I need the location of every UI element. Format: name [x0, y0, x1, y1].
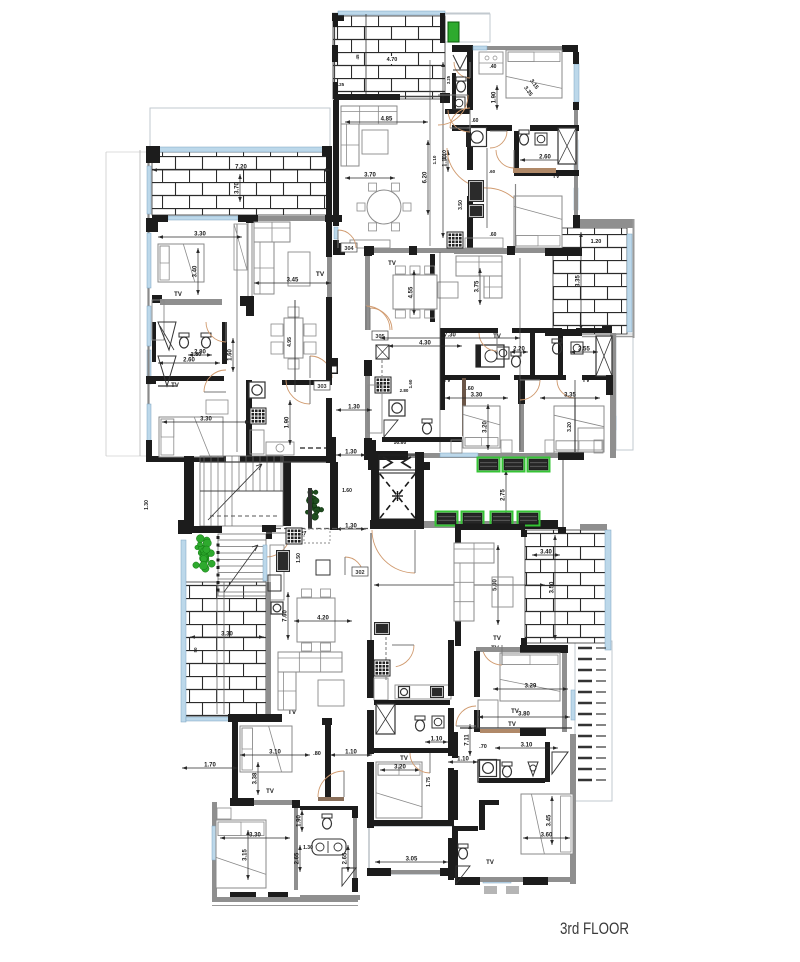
svg-text:3.60: 3.60 [541, 833, 553, 839]
svg-text:7.60: 7.60 [283, 610, 289, 622]
svg-text:1.30: 1.30 [348, 405, 360, 411]
svg-text:1.90: 1.90 [285, 416, 291, 428]
svg-text:1.60: 1.60 [342, 488, 352, 494]
svg-text:3.30: 3.30 [194, 232, 206, 238]
svg-text:.25: .25 [338, 82, 345, 87]
svg-text:3.05: 3.05 [406, 857, 418, 863]
svg-text:1.30: 1.30 [345, 450, 357, 456]
svg-text:TV: TV [316, 271, 325, 278]
svg-text:6.20: 6.20 [423, 171, 429, 183]
svg-text:3.35: 3.35 [564, 393, 576, 399]
svg-text:.60: .60 [466, 386, 474, 392]
svg-text:2.20: 2.20 [513, 347, 525, 353]
svg-text:303: 303 [317, 384, 326, 390]
svg-text:TV: TV [388, 261, 396, 267]
svg-text:3.20: 3.20 [394, 765, 406, 771]
svg-text:1.10: 1.10 [345, 750, 357, 756]
svg-text:3.75: 3.75 [475, 280, 481, 292]
svg-text:TV: TV [174, 292, 182, 298]
svg-text:3.40: 3.40 [193, 265, 199, 277]
svg-text:7.20: 7.20 [235, 165, 247, 171]
svg-text:3.45: 3.45 [547, 814, 553, 826]
svg-text:.70: .70 [479, 744, 487, 750]
svg-text:1.10: 1.10 [457, 757, 469, 763]
svg-text:3.29: 3.29 [525, 684, 537, 690]
svg-text:3.38: 3.38 [253, 772, 259, 784]
svg-text:.40: .40 [490, 64, 497, 70]
svg-text:.60: .60 [490, 232, 497, 238]
svg-text:3.50: 3.50 [550, 581, 556, 593]
svg-text:TV: TV [511, 709, 519, 715]
svg-text:2.75: 2.75 [501, 489, 507, 501]
svg-text:2.80: 2.80 [194, 350, 206, 356]
svg-text:50: 50 [193, 647, 198, 653]
svg-text:2.55: 2.55 [578, 347, 590, 353]
svg-text:3.30: 3.30 [221, 632, 233, 638]
svg-text:3.15: 3.15 [243, 849, 249, 861]
svg-text:2.65: 2.65 [295, 852, 301, 864]
svg-text:4.20: 4.20 [317, 616, 329, 622]
svg-text:2.60: 2.60 [183, 358, 195, 364]
svg-text:3.10: 3.10 [269, 750, 281, 756]
svg-text:3.30: 3.30 [471, 393, 483, 399]
svg-text:1.50: 1.50 [296, 553, 302, 563]
svg-text:3.30: 3.30 [200, 417, 212, 423]
svg-text:45: 45 [355, 54, 360, 60]
svg-text:1.75: 1.75 [426, 777, 432, 787]
svg-text:3.70: 3.70 [364, 173, 376, 179]
svg-text:4.85: 4.85 [381, 117, 393, 123]
svg-text:3.35: 3.35 [576, 275, 582, 287]
svg-text:3.20: 3.20 [483, 421, 489, 433]
svg-text:3.50: 3.50 [458, 200, 464, 210]
svg-text:1.90: 1.90 [297, 815, 303, 827]
svg-text:7.30: 7.30 [444, 333, 456, 339]
svg-text:7.11: 7.11 [465, 734, 471, 746]
svg-text:TV: TV [508, 722, 516, 728]
svg-text:TV: TV [443, 378, 451, 384]
svg-text:3.80: 3.80 [518, 712, 530, 718]
svg-text:.80: .80 [313, 751, 321, 757]
svg-text:3.20: 3.20 [567, 422, 573, 432]
svg-text:.60: .60 [489, 169, 496, 174]
svg-text:50.60: 50.60 [394, 440, 407, 446]
svg-text:4.95: 4.95 [287, 337, 293, 347]
svg-text:4.55: 4.55 [409, 286, 415, 298]
svg-text:TV: TV [486, 860, 494, 866]
svg-text:TV: TV [266, 789, 274, 795]
svg-text:TV: TV [171, 383, 179, 389]
svg-text:.60: .60 [472, 118, 479, 124]
svg-text:1.20: 1.20 [591, 239, 602, 245]
svg-text:302: 302 [355, 570, 364, 576]
svg-text:1.60: 1.60 [228, 349, 234, 361]
svg-text:4.70: 4.70 [387, 57, 398, 63]
svg-text:304: 304 [344, 246, 354, 252]
svg-text:3.30: 3.30 [249, 833, 261, 839]
svg-text:1.90: 1.90 [492, 91, 498, 103]
svg-text:3.40: 3.40 [540, 550, 552, 556]
svg-text:TV: TV [552, 174, 559, 180]
svg-text:1.10: 1.10 [431, 737, 443, 743]
svg-text:3.70: 3.70 [235, 182, 241, 194]
svg-text:1.30: 1.30 [144, 500, 150, 510]
svg-text:TV: TV [582, 378, 590, 384]
svg-text:2.60: 2.60 [539, 155, 551, 161]
svg-text:1.60: 1.60 [408, 379, 413, 388]
svg-text:3.25: 3.25 [446, 75, 451, 84]
svg-text:1.30: 1.30 [303, 845, 313, 851]
svg-text:2.65: 2.65 [343, 852, 349, 864]
svg-text:TV: TV [493, 636, 501, 642]
svg-text:4.30: 4.30 [419, 341, 431, 347]
svg-text:5.00: 5.00 [493, 579, 499, 591]
svg-text:3.10: 3.10 [521, 743, 533, 749]
svg-text:TV: TV [400, 756, 408, 762]
svg-text:1.70: 1.70 [204, 763, 216, 769]
svg-text:3rd FLOOR: 3rd FLOOR [560, 920, 629, 938]
svg-text:3.45: 3.45 [287, 278, 299, 284]
svg-text:1.10: 1.10 [432, 155, 437, 164]
